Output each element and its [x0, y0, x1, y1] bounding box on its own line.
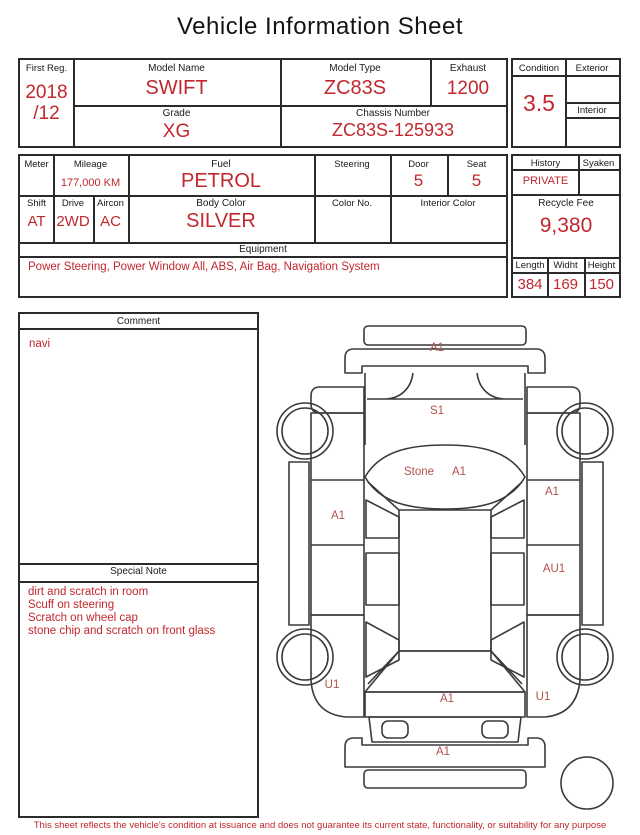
vehicle-information-sheet: Vehicle Information Sheet First Reg. 201… [0, 0, 640, 835]
left-side-windows [366, 500, 399, 677]
history-box: History PRIVATE Syaken Recycle Fee 9,380… [511, 154, 621, 298]
windshield-outline [365, 445, 525, 509]
special-note-line: Scratch on wheel cap [28, 612, 253, 625]
grade-label: Grade [73, 108, 280, 119]
interior-color-label: Interior Color [390, 198, 506, 209]
front-right-tire [557, 403, 613, 459]
front-left-wheel [282, 408, 328, 454]
left-taillight [382, 721, 408, 738]
grid-line [513, 257, 619, 259]
spare-tire [561, 757, 613, 809]
rear-right-wheel [562, 634, 608, 680]
right-mirror [527, 387, 580, 413]
width-label: Widht [547, 260, 584, 271]
chassis-number-value: ZC83S-125933 [280, 120, 506, 141]
height-value: 150 [584, 276, 619, 293]
recycle-fee-value: 9,380 [513, 214, 619, 238]
damage-label-right-rear-door: AU1 [536, 563, 572, 575]
grid-line [73, 105, 506, 107]
grid-line [513, 272, 619, 274]
grid-line [20, 581, 257, 583]
grid-line [565, 117, 619, 119]
right-side-windows [491, 500, 524, 677]
damage-label-tailgate: A1 [435, 693, 459, 705]
chassis-number-label: Chassis Number [280, 108, 506, 119]
interior-label: Interior [565, 105, 619, 116]
model-name-value: SWIFT [73, 77, 280, 100]
left-rear-fender [311, 615, 364, 717]
first-reg-label: First Reg. [20, 63, 73, 74]
seat-value: 5 [447, 171, 506, 191]
right-door-panels [527, 413, 580, 615]
syaken-label: Syaken [578, 158, 619, 169]
front-left-tire [277, 403, 333, 459]
exterior-label: Exterior [565, 63, 619, 74]
history-label: History [513, 158, 578, 169]
grid-line [513, 169, 619, 171]
grid-line [565, 102, 619, 104]
left-mirror [311, 387, 364, 413]
aircon-label: Aircon [93, 198, 128, 209]
grid-line [20, 563, 257, 565]
comment-value: navi [29, 338, 249, 350]
hood-inner-lines [367, 373, 523, 399]
grade-value: XG [73, 121, 280, 143]
comment-label: Comment [20, 316, 257, 327]
rear-left-wheel [282, 634, 328, 680]
left-side-sill [289, 462, 309, 625]
body-color-label: Body Color [128, 198, 314, 209]
rear-window [365, 651, 525, 692]
shift-value: AT [20, 213, 53, 230]
equipment-label: Equipment [20, 244, 506, 255]
special-note-line: dirt and scratch in room [28, 586, 253, 599]
height-label: Height [584, 260, 619, 271]
damage-label-front-bumper: A1 [419, 342, 455, 354]
damage-label-left-front-door: A1 [326, 510, 350, 522]
recycle-fee-label: Recycle Fee [513, 198, 619, 209]
length-value: 384 [513, 276, 547, 293]
condition-label: Condition [513, 63, 565, 74]
disclaimer-text: This sheet reflects the vehicle's condit… [0, 820, 640, 831]
rear-bumper-bottom-strip [364, 770, 526, 788]
comment-box: Comment navi Special Note dirt and scrat… [18, 312, 259, 818]
damage-label-right-front-door: A1 [540, 486, 564, 498]
damage-label-hood: S1 [419, 405, 455, 417]
fuel-value: PETROL [128, 170, 314, 193]
steering-label: Steering [314, 159, 390, 170]
exhaust-value: 1200 [430, 78, 506, 100]
right-taillight [482, 721, 508, 738]
aircon-value: AC [93, 213, 128, 230]
specs-table: Meter Mileage Fuel Steering Door Seat 17… [18, 154, 508, 298]
damage-label-windshield-stone: Stone [395, 466, 443, 478]
model-type-label: Model Type [280, 63, 430, 74]
rear-right-tire [557, 629, 613, 685]
grid-line [513, 194, 619, 196]
grid-line [20, 256, 506, 258]
drive-label: Drive [53, 198, 93, 209]
damage-label-left-rear-fender: U1 [320, 679, 344, 691]
mileage-label: Mileage [53, 159, 128, 170]
equipment-value: Power Steering, Power Window All, ABS, A… [28, 261, 498, 273]
model-type-value: ZC83S [280, 77, 430, 100]
meter-label: Meter [20, 159, 53, 170]
exhaust-label: Exhaust [430, 63, 506, 74]
identity-table: First Reg. 2018 /12 Model Name SWIFT Mod… [18, 58, 508, 148]
car-diagram [272, 312, 634, 812]
door-value: 5 [390, 171, 447, 191]
rear-left-tire [277, 629, 333, 685]
condition-box: Condition 3.5 Exterior Interior [511, 58, 621, 148]
right-side-sill [582, 462, 603, 625]
first-reg-value: 2018 /12 [18, 82, 75, 124]
special-note-label: Special Note [20, 566, 257, 577]
seat-label: Seat [447, 159, 506, 170]
drive-value: 2WD [53, 213, 93, 230]
body-color-value: SILVER [128, 210, 314, 233]
model-name-label: Model Name [73, 63, 280, 74]
special-note-line: Scuff on steering [28, 599, 253, 612]
history-value: PRIVATE [513, 175, 578, 187]
front-right-wheel [562, 408, 608, 454]
condition-value: 3.5 [513, 90, 565, 117]
width-value: 169 [547, 276, 584, 293]
shift-label: Shift [20, 198, 53, 209]
length-label: Length [513, 260, 547, 271]
grid-line [20, 328, 257, 330]
grid-line [513, 75, 619, 77]
page-title: Vehicle Information Sheet [0, 13, 640, 41]
color-no-label: Color No. [314, 198, 390, 209]
roof-outline [399, 510, 491, 651]
damage-label-right-rear-fender: U1 [531, 691, 555, 703]
fuel-label: Fuel [128, 159, 314, 170]
damage-label-rear-bumper: A1 [431, 746, 455, 758]
door-label: Door [390, 159, 447, 170]
special-note-line: stone chip and scratch on front glass [28, 625, 253, 638]
mileage-value: 177,000 KM [53, 177, 128, 189]
damage-label-windshield: A1 [447, 466, 471, 478]
